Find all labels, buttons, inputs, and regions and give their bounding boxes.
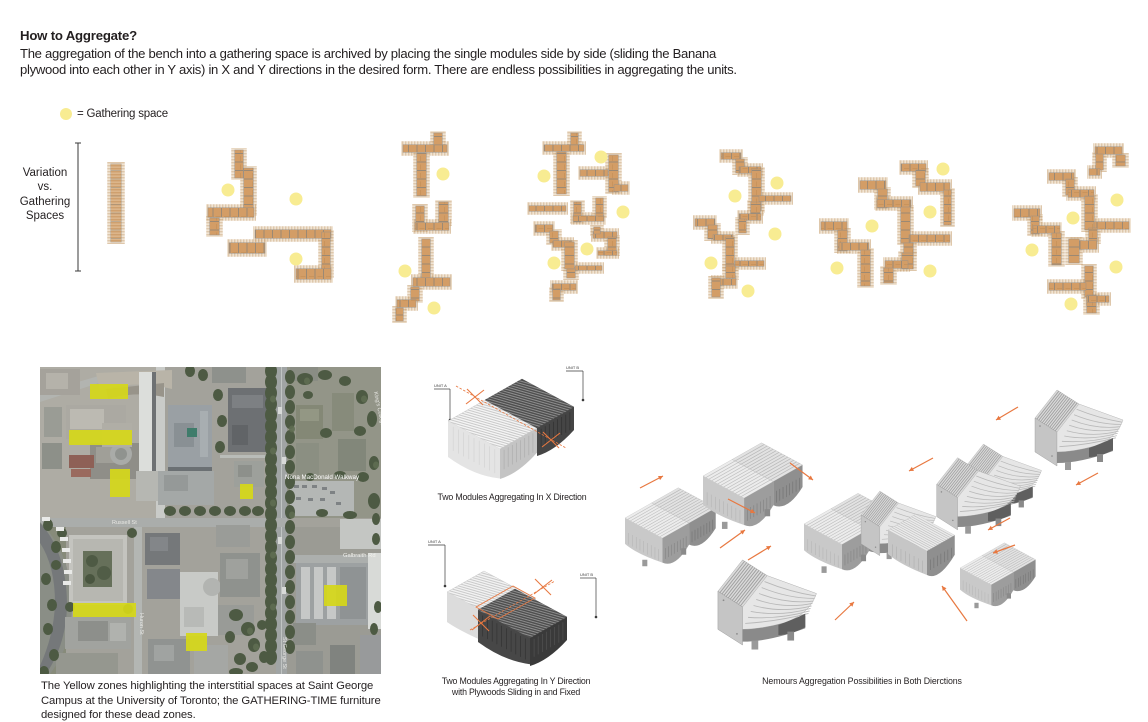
svg-text:UNIT B: UNIT B [566,365,579,370]
svg-text:St George St: St George St [281,637,287,669]
svg-text:UNIT B: UNIT B [580,572,593,577]
svg-text:Russell St: Russell St [112,520,137,526]
svg-text:Galbraith Rd: Galbraith Rd [343,553,376,559]
svg-text:Nona MacDonald Walkway: Nona MacDonald Walkway [285,474,360,481]
svg-text:Huron St: Huron St [138,613,144,635]
svg-text:UNIT A: UNIT A [434,383,447,388]
svg-text:UNIT A: UNIT A [428,539,441,544]
